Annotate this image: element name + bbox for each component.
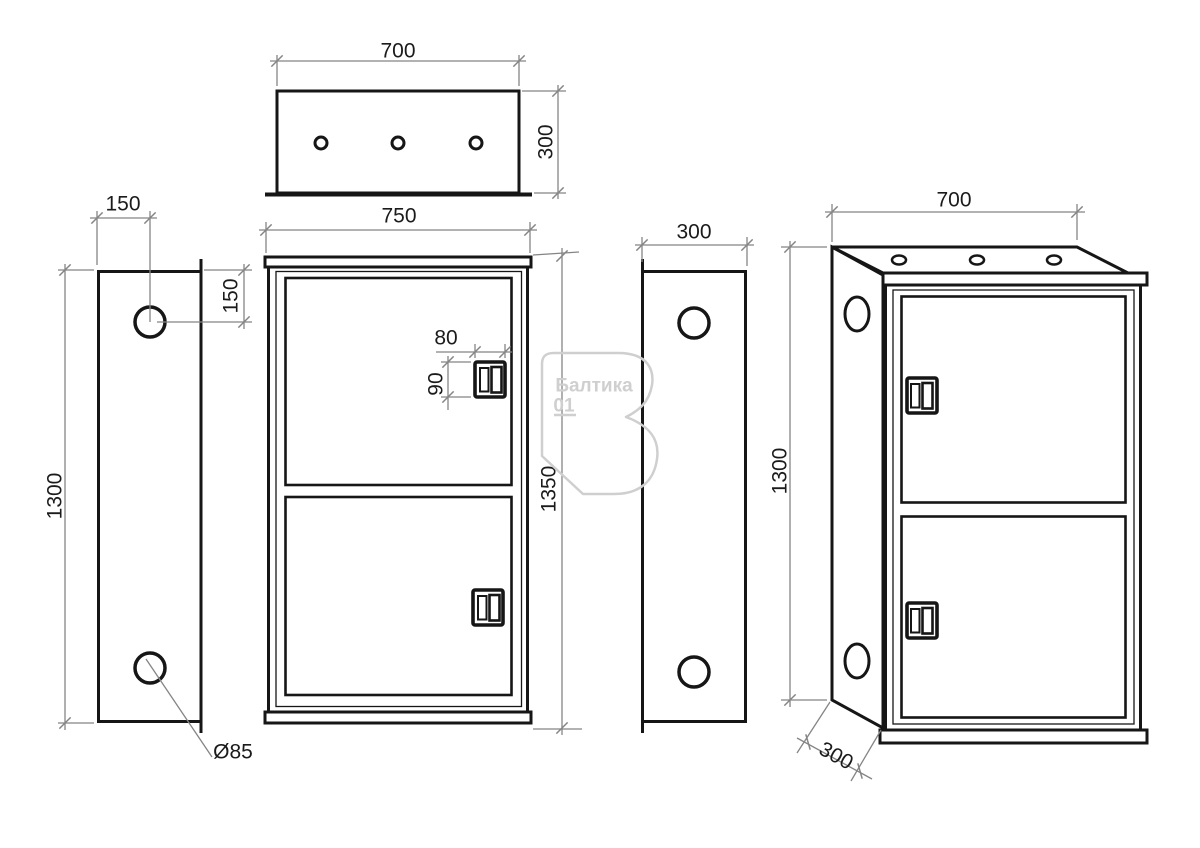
dim-label-axo-height: 1300 [769,448,792,495]
dim-label-hole-x: 150 [105,193,140,216]
door-lower [902,517,1126,718]
cabinet-body [886,285,1141,730]
fire-cabinet-drawing: 7003001501501300Ø85750809013503007001300… [0,0,1200,848]
handle-lower-latch [923,608,933,634]
handle-upper-latch [492,367,502,393]
dim-label-axo-width: 700 [936,189,971,212]
top-face [832,247,1128,273]
cabinet-inner-frame [893,290,1134,724]
top-face-hole-3 [1047,256,1061,265]
side-plate-view: 300 [635,221,754,734]
side-panel-hole-top [845,297,869,331]
side-panel [832,247,883,728]
plate-hole-bottom [135,653,165,683]
side-panel-hole-bottom [845,644,869,678]
dim-label-top-width: 700 [380,40,415,63]
front-view: 75080901350 [259,205,582,736]
baltika-logo-outline [542,353,657,494]
dim-label-front-height: 1350 [538,466,561,513]
dim-label-top-depth: 300 [535,124,558,159]
door-upper [286,278,512,485]
axonometric-view: 7001300300 [769,189,1148,782]
cabinet-inner-frame [276,272,522,707]
top-view-hole-3 [470,137,482,149]
cabinet-top-plate [883,273,1147,285]
dim-label-axo-depth: 300 [815,737,857,774]
dim-label-plate-height: 1300 [44,473,67,520]
ext-line [533,252,579,255]
handle-upper-grip [480,368,489,392]
dim-label-front-width: 750 [381,205,416,228]
cabinet-bottom-plate [880,730,1147,743]
handle-upper-grip [911,384,920,408]
handle-lower-grip [911,609,920,633]
handle-upper-latch [923,383,933,409]
handle-lower-grip [478,596,487,620]
dim-label-handle-height: 90 [425,372,448,395]
dim-label-side-depth: 300 [676,221,711,244]
dim-label-handle-width: 80 [434,327,457,350]
top-view: 700300 [265,40,566,200]
top-view-hole-2 [392,137,404,149]
plate-hole-bottom [679,657,709,687]
top-face-hole-2 [970,256,984,265]
technical-drawing-page: 7003001501501300Ø85750809013503007001300… [0,0,1200,848]
cabinet-bottom-plate [265,712,531,723]
door-upper [902,297,1126,503]
left-plate-view: 1501501300Ø85 [44,193,253,764]
baltika-logo-number: 01 [553,396,575,417]
cabinet-body [269,267,528,712]
baltika-logo-text: Балтика [555,376,633,397]
dim-label-hole-diameter: Ø85 [213,741,253,764]
plate-hole-top [679,308,709,338]
top-view-hole-1 [315,137,327,149]
watermark: Балтика01 [542,353,657,494]
dim-label-hole-y: 150 [220,278,243,313]
top-face-hole-1 [892,256,906,265]
handle-lower-latch [490,595,500,621]
